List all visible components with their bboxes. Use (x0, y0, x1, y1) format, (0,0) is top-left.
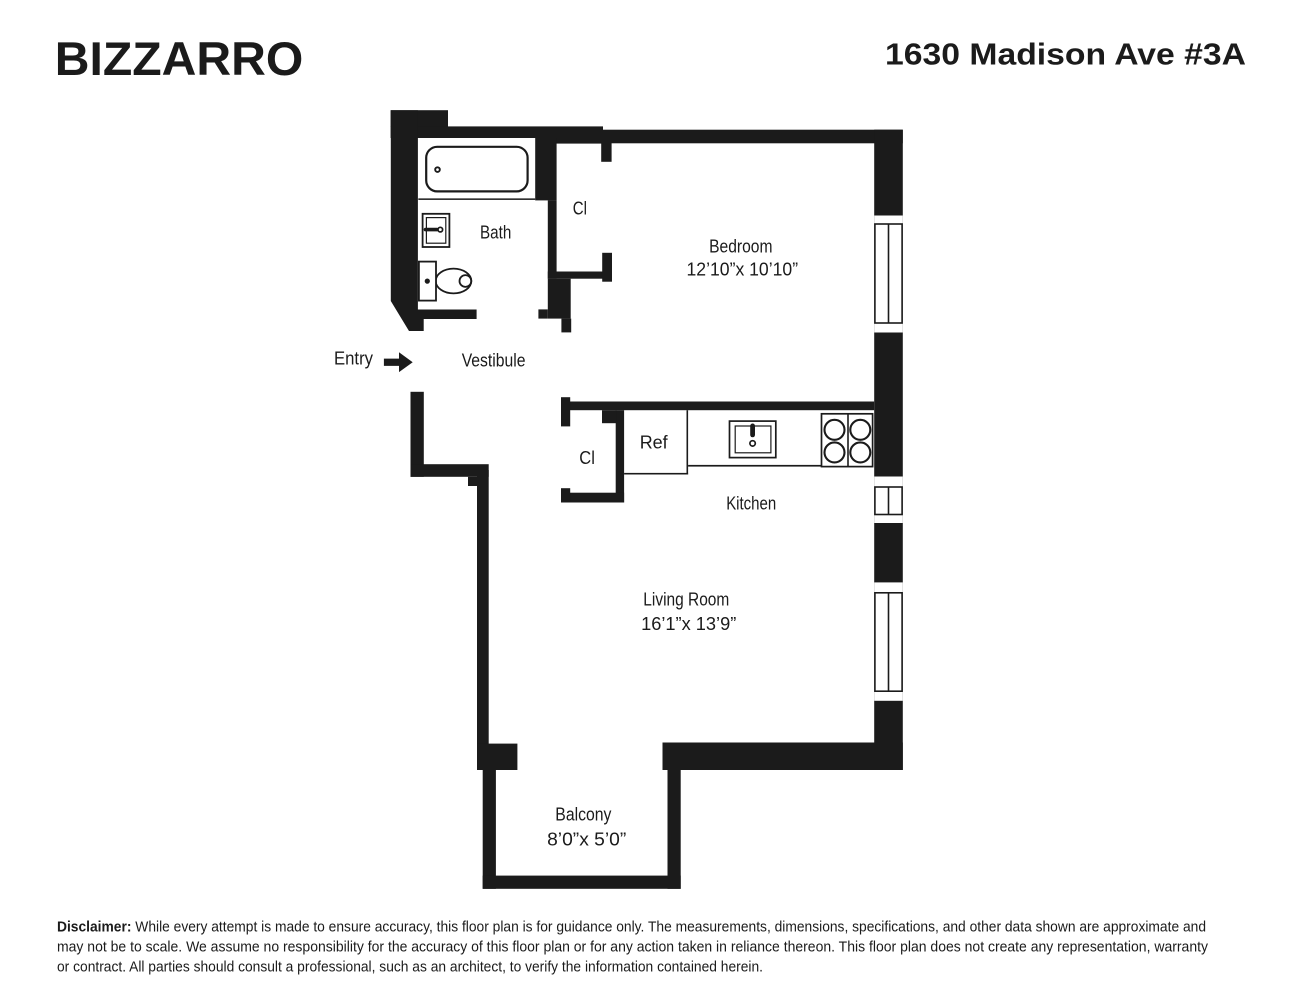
svg-text:Disclaimer: While every attemp: Disclaimer: While every attempt is made … (57, 919, 1206, 935)
svg-text:Entry: Entry (334, 348, 374, 369)
svg-text:Balcony: Balcony (555, 804, 612, 825)
svg-text:12’10”x 10’10”: 12’10”x 10’10” (687, 259, 799, 280)
svg-text:may not be to scale. We assume: may not be to scale. We assume no respon… (57, 940, 1209, 956)
svg-text:BIZZARRO: BIZZARRO (55, 33, 303, 86)
svg-text:1630 Madison Ave #3A: 1630 Madison Ave #3A (885, 37, 1246, 72)
svg-text:Vestibule: Vestibule (462, 349, 526, 370)
svg-text:Kitchen: Kitchen (726, 493, 776, 514)
svg-text:or contract. All parties shoul: or contract. All parties should consult … (57, 960, 763, 976)
svg-text:Cl: Cl (579, 447, 595, 468)
svg-text:Living Room: Living Room (643, 588, 729, 609)
svg-text:8’0”x 5’0”: 8’0”x 5’0” (547, 828, 626, 849)
svg-text:16’1”x 13’9”: 16’1”x 13’9” (641, 613, 736, 634)
svg-text:Ref: Ref (640, 432, 669, 453)
svg-text:Cl: Cl (573, 198, 587, 219)
svg-text:Bedroom: Bedroom (709, 236, 772, 257)
svg-text:Bath: Bath (480, 222, 511, 243)
